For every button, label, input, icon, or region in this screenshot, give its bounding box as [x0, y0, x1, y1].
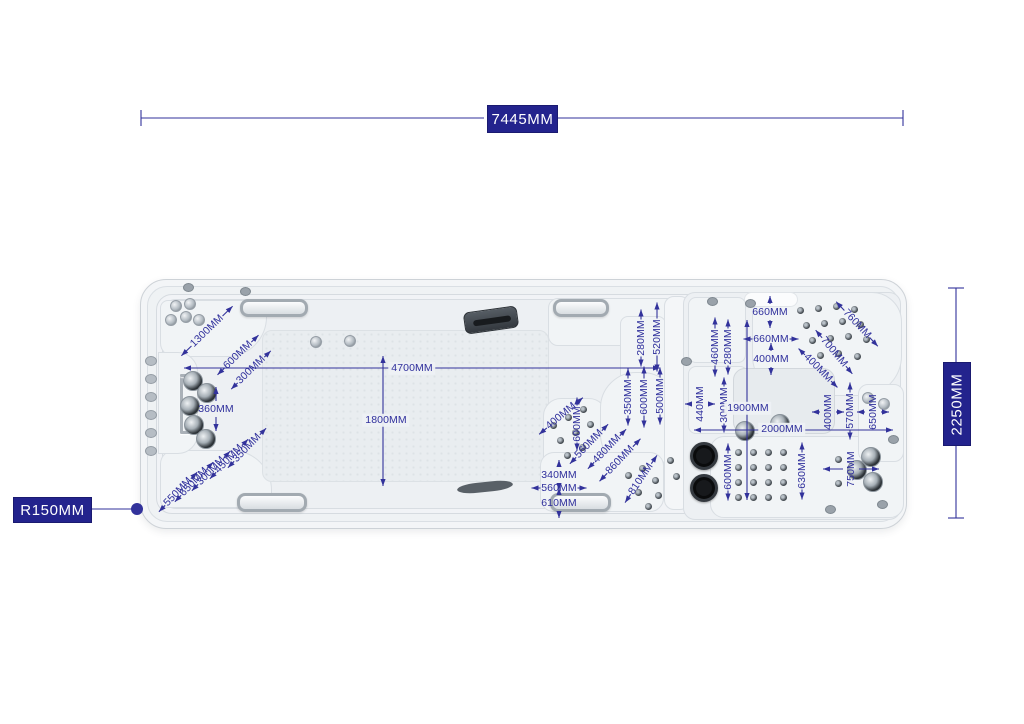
jet-micro-icon — [587, 421, 594, 428]
dimension-label: 280MM — [723, 329, 734, 365]
jet-micro-icon — [750, 494, 757, 501]
rim-bolt-icon — [707, 297, 718, 306]
dimension-label: 2000MM — [758, 423, 805, 436]
jet-small-icon — [180, 311, 192, 323]
jet-micro-icon — [765, 494, 772, 501]
jet-micro-icon — [833, 303, 840, 310]
wall-jet-icon — [145, 374, 157, 384]
dimension-label: 280MM — [636, 320, 647, 356]
jet-micro-icon — [803, 322, 810, 329]
jet-micro-icon — [780, 449, 787, 456]
jet-micro-icon — [780, 479, 787, 486]
jet-small-icon — [170, 300, 182, 312]
rim-bolt-icon — [877, 500, 888, 509]
rim-bolt-icon — [240, 287, 251, 296]
corner-radius-text: R150MM — [20, 502, 84, 519]
dimension-label: 340MM — [541, 470, 577, 481]
rim-bolt-icon — [888, 435, 899, 444]
dimension-label: 660MM — [752, 307, 788, 318]
jet-micro-icon — [817, 352, 824, 359]
wall-jet-icon — [145, 392, 157, 402]
speaker-fitting-icon — [690, 474, 718, 502]
speaker-fitting-icon — [690, 442, 718, 470]
corner-radius-label: R150MM — [13, 497, 92, 523]
jet-micro-icon — [780, 494, 787, 501]
jet-micro-icon — [564, 452, 571, 459]
dimension-label: 460MM — [710, 329, 721, 365]
dimension-label: 360MM — [198, 404, 234, 415]
dimension-label: 1800MM — [362, 414, 409, 427]
jet-micro-icon — [854, 353, 861, 360]
dimension-label: 500MM — [655, 378, 666, 414]
jet-micro-icon — [735, 479, 742, 486]
grab-handle — [553, 299, 609, 317]
jet-small-icon — [310, 336, 322, 348]
jet-micro-icon — [765, 464, 772, 471]
diagram-canvas: 7445MM 2250MM R150MM 1300MM600MM300MM360… — [0, 0, 1024, 724]
swim-lane-floor — [262, 330, 549, 482]
jet-micro-icon — [821, 320, 828, 327]
dimension-label: 630MM — [797, 453, 808, 489]
jet-micro-icon — [557, 437, 564, 444]
rim-bolt-icon — [825, 505, 836, 514]
wall-jet-icon — [145, 410, 157, 420]
dimension-label: 4700MM — [388, 362, 435, 375]
wall-jet-icon — [145, 428, 157, 438]
jet-micro-icon — [750, 449, 757, 456]
jet-micro-icon — [735, 494, 742, 501]
grab-handle — [240, 299, 308, 317]
jet-micro-icon — [780, 464, 787, 471]
grab-handle — [237, 493, 307, 512]
rim-bolt-icon — [183, 283, 194, 292]
overall-length-text: 7445MM — [492, 111, 554, 128]
overall-width-text: 2250MM — [949, 373, 966, 435]
jet-micro-icon — [750, 464, 757, 471]
dimension-label: 560MM — [541, 483, 577, 494]
dimension-label: 400MM — [823, 394, 834, 430]
jet-micro-icon — [809, 337, 816, 344]
jet-micro-icon — [673, 473, 680, 480]
jet-micro-icon — [645, 503, 652, 510]
jet-micro-icon — [835, 456, 842, 463]
jet-micro-icon — [845, 333, 852, 340]
jet-large-icon — [196, 429, 216, 449]
jet-micro-icon — [835, 480, 842, 487]
jet-micro-icon — [625, 472, 632, 479]
dimension-label: 660MM — [753, 334, 789, 345]
jet-micro-icon — [750, 479, 757, 486]
jet-micro-icon — [652, 477, 659, 484]
jet-large-icon — [735, 421, 755, 441]
jet-micro-icon — [797, 307, 804, 314]
jet-small-icon — [184, 298, 196, 310]
dimension-label: 650MM — [868, 394, 879, 430]
jet-large-icon — [197, 383, 217, 403]
jet-micro-icon — [765, 449, 772, 456]
dimension-label: 520MM — [652, 319, 663, 355]
jet-micro-icon — [655, 492, 662, 499]
dimension-label: 610MM — [541, 498, 577, 509]
dimension-label: 350MM — [623, 379, 634, 415]
jet-micro-icon — [735, 449, 742, 456]
wall-jet-icon — [145, 356, 157, 366]
jet-micro-icon — [667, 457, 674, 464]
dimension-label: 600MM — [572, 406, 583, 442]
dimension-label: 750MM — [846, 451, 857, 487]
jet-large-icon — [180, 396, 200, 416]
dimension-label: 440MM — [695, 386, 706, 422]
jet-small-icon — [165, 314, 177, 326]
rim-bolt-icon — [681, 357, 692, 366]
dimension-label: 400MM — [753, 354, 789, 365]
vent-slot — [473, 315, 511, 326]
dimension-label: 600MM — [723, 454, 734, 490]
jet-small-icon — [878, 398, 890, 410]
jet-micro-icon — [735, 464, 742, 471]
jet-micro-icon — [815, 305, 822, 312]
jet-large-icon — [863, 472, 883, 492]
jet-micro-icon — [765, 479, 772, 486]
dimension-label: 600MM — [639, 379, 650, 415]
overall-length-label: 7445MM — [487, 105, 558, 133]
jet-small-icon — [344, 335, 356, 347]
dimension-label: 570MM — [845, 393, 856, 429]
dimension-label: 1900MM — [724, 402, 771, 415]
wall-jet-icon — [145, 446, 157, 456]
overall-width-label: 2250MM — [943, 362, 971, 446]
